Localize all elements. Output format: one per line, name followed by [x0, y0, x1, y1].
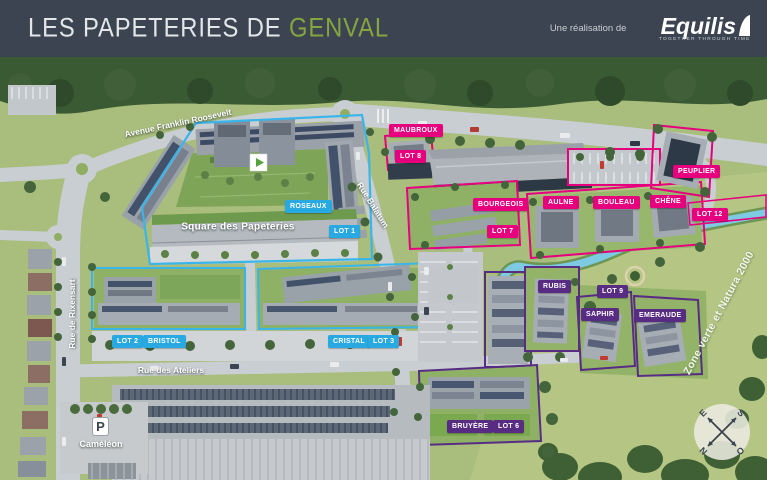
- bruyere-block: [419, 365, 541, 445]
- equilis-tagline: TOGETHER THROUGH TIME: [659, 37, 751, 42]
- parking-icon: P: [92, 417, 109, 436]
- cristal-block: [258, 263, 435, 329]
- lot-label-lot8[interactable]: LOT 8: [395, 150, 426, 163]
- lot-label-emeraude[interactable]: EMERAUDE: [634, 309, 686, 322]
- lot-label-bourgeois[interactable]: BOURGEOIS: [473, 198, 528, 211]
- lot-label-lot2[interactable]: LOT 2: [112, 335, 143, 348]
- equilis-logo: Equilis TOGETHER THROUGH TIME: [636, 15, 751, 43]
- site-map: Avenue Franklin Roosevelt Rue Balatum Ru…: [0, 57, 767, 480]
- title-highlight: GENVAL: [289, 12, 389, 42]
- lot-label-bristol[interactable]: BRISTOL: [143, 335, 186, 348]
- lot-label-roseaux[interactable]: ROSEAUX: [285, 200, 332, 213]
- street-label-rue-de-rixensart: Rue de Rixensart: [67, 279, 77, 348]
- lot-label-lot1[interactable]: LOT 1: [329, 225, 360, 238]
- header-bar: LES PAPETERIES DE GENVAL Une réalisation…: [0, 0, 767, 57]
- lot-label-lot7[interactable]: LOT 7: [487, 225, 518, 238]
- square-des-papeteries-label: Square des Papeteries: [181, 222, 295, 233]
- page-title: LES PAPETERIES DE GENVAL: [28, 12, 389, 43]
- lot-label-peuplier[interactable]: PEUPLIER: [673, 165, 720, 178]
- equilis-wordmark: Equilis: [661, 16, 736, 36]
- lot-label-lot9[interactable]: LOT 9: [597, 285, 628, 298]
- lot-label-lot3[interactable]: LOT 3: [368, 335, 399, 348]
- lot-label-cristal[interactable]: CRISTAL: [328, 335, 370, 348]
- site-map-illustration: [0, 57, 767, 480]
- lot-label-saphir[interactable]: SAPHIR: [581, 308, 619, 321]
- bourgeois-block: [407, 181, 520, 250]
- lot-label-bouleau[interactable]: BOULEAU: [593, 196, 640, 209]
- lot-label-chene[interactable]: CHÊNE: [650, 195, 686, 208]
- credit-text: Une réalisation de: [550, 23, 627, 34]
- parking-name-label: Caméléon: [79, 439, 122, 449]
- bristol-block: [92, 268, 245, 329]
- compass-rose: E S O N: [694, 404, 750, 460]
- warehouse: [112, 385, 430, 480]
- lot-label-rubis[interactable]: RUBIS: [538, 280, 571, 293]
- lot-label-lot12[interactable]: LOT 12: [692, 208, 728, 221]
- lot-label-lot6[interactable]: LOT 6: [493, 420, 524, 433]
- lot-label-aulne[interactable]: AULNE: [543, 196, 579, 209]
- masterplan-page: LES PAPETERIES DE GENVAL Une réalisation…: [0, 0, 767, 480]
- street-label-rue-des-ateliers: Rue des Ateliers: [138, 365, 204, 375]
- title-prefix: LES PAPETERIES DE: [28, 12, 289, 42]
- lot-label-bruyere[interactable]: BRUYÈRE: [447, 420, 493, 433]
- equilis-fin-icon: [738, 15, 751, 36]
- lot-label-maubroux[interactable]: MAUBROUX: [389, 124, 443, 137]
